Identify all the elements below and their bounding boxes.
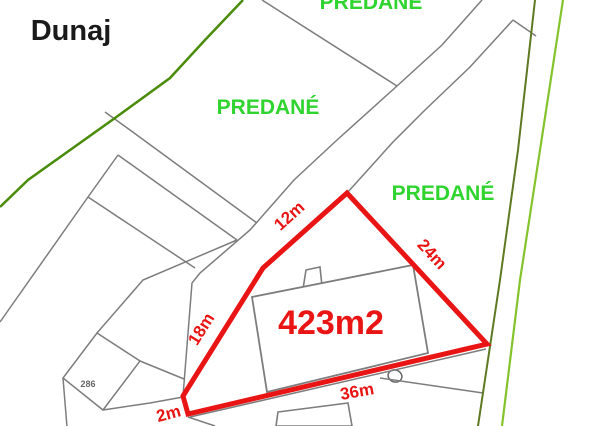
- parcel-number-286: 286: [80, 379, 95, 389]
- sw-path-to-corner-upper: [140, 361, 184, 379]
- sw-down-line: [63, 378, 67, 426]
- building-lower: [276, 403, 352, 426]
- map-canvas: DunajPREDANÉPREDANÉPREDANÉ423m212m24m18m…: [0, 0, 600, 426]
- side-length-12m: 12m: [270, 197, 308, 234]
- west-branch-line: [88, 197, 195, 268]
- predane-label-top: PREDANÉ: [320, 0, 423, 14]
- side-length-2m: 2m: [154, 401, 183, 426]
- side-path-edge-2: [118, 155, 237, 240]
- parcel-286-outline: [63, 333, 140, 410]
- side-path-edge-1: [105, 112, 257, 223]
- olive-boundary-right: [478, 0, 535, 426]
- predane-label-right: PREDANÉ: [392, 182, 495, 205]
- road-se-edge: [263, 20, 513, 268]
- predane-label-left: PREDANÉ: [217, 96, 320, 119]
- plot-area-label: 423m2: [278, 304, 384, 342]
- dunaj-label: Dunaj: [31, 15, 112, 47]
- bright-green-boundary-right: [502, 0, 563, 426]
- cadastral-map: DunajPREDANÉPREDANÉPREDANÉ423m212m24m18m…: [0, 0, 600, 426]
- west-boundary-line: [0, 155, 118, 322]
- side-length-36m: 36m: [339, 379, 376, 404]
- boundary-to-olive: [380, 378, 483, 393]
- bottom-stub-line: [188, 417, 215, 426]
